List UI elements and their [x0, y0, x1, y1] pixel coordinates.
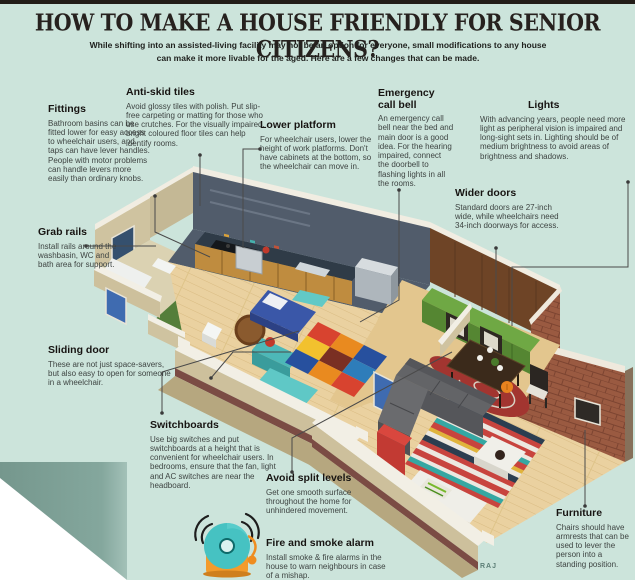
- callout-switchboards-heading: Switchboards: [150, 420, 286, 432]
- callout-furniture-body: Chairs should have armrests that can be …: [556, 523, 634, 569]
- table-bowl: [495, 450, 505, 460]
- callout-grab-rails-body: Install rails around the washbasin, WC a…: [38, 242, 126, 270]
- callout-lower-platform-heading: Lower platform: [260, 120, 376, 132]
- callout-emergency-body: An emergency call bell near the bed and …: [378, 114, 454, 188]
- callout-anti-skid-body: Avoid glossy tiles with polish. Put slip…: [126, 102, 272, 148]
- callout-fire-alarm-body: Install smoke & fire alarms in the house…: [266, 553, 394, 580]
- callout-wider-doors-body: Standard doors are 27-inch wide, while w…: [455, 203, 559, 231]
- callout-lights-heading: Lights: [528, 100, 630, 112]
- table-plant: [491, 358, 499, 366]
- callout-furniture-heading: Furniture: [556, 508, 634, 520]
- callout-lower-platform: Lower platform For wheelchair users, low…: [260, 120, 376, 172]
- callout-grab-rails-heading: Grab rails: [38, 227, 126, 239]
- callout-emergency-heading: Emergency call bell: [378, 88, 454, 111]
- callout-sliding-door-heading: Sliding door: [48, 345, 174, 357]
- callout-avoid-split-levels: Avoid split levels Get one smooth surfac…: [266, 473, 366, 515]
- callout-anti-skid-heading: Anti-skid tiles: [126, 87, 272, 99]
- callout-lights: Lights With advancing years, people need…: [480, 100, 630, 161]
- callout-lights-body: With advancing years, people need more l…: [480, 115, 630, 161]
- callout-sliding-door-body: These are not just space-savers, but als…: [48, 360, 174, 388]
- page-corner-fold: [0, 462, 127, 580]
- callout-sliding-door: Sliding door These are not just space-sa…: [48, 345, 174, 387]
- callout-wider-doors: Wider doors Standard doors are 27-inch w…: [455, 188, 559, 230]
- callout-anti-skid-tiles: Anti-skid tiles Avoid glossy tiles with …: [126, 87, 272, 148]
- credit-byline: RAJ: [480, 563, 497, 570]
- infographic-page: HOW TO MAKE A HOUSE FRIENDLY FOR SENIOR …: [0, 0, 635, 580]
- callout-furniture: Furniture Chairs should have armrests th…: [556, 508, 634, 569]
- cooking-pot: [263, 247, 270, 254]
- callout-avoid-split-body: Get one smooth surface throughout the ho…: [266, 488, 366, 516]
- fire-alarm-bell-icon: [195, 514, 258, 578]
- callout-wider-doors-heading: Wider doors: [455, 188, 559, 200]
- callout-fire-alarm-heading: Fire and smoke alarm: [266, 538, 394, 550]
- callout-lower-platform-body: For wheelchair users, lower the height o…: [260, 135, 376, 172]
- callout-emergency-call-bell: Emergency call bell An emergency call be…: [378, 88, 454, 188]
- callout-fire-and-smoke-alarm: Fire and smoke alarm Install smoke & fir…: [266, 538, 394, 580]
- callout-grab-rails: Grab rails Install rails around the wash…: [38, 227, 126, 269]
- callout-avoid-split-heading: Avoid split levels: [266, 473, 366, 485]
